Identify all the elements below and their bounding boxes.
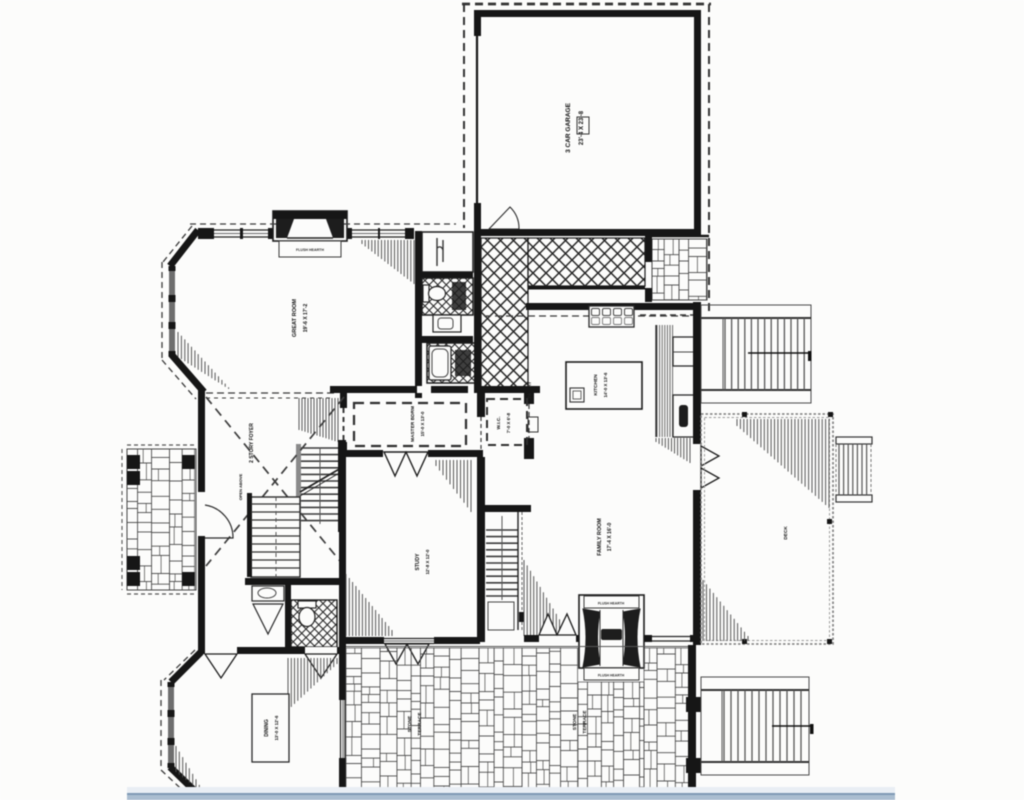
svg-text:STONE: STONE [407, 715, 413, 732]
svg-text:23'-4 X 23'-8: 23'-4 X 23'-8 [579, 110, 585, 145]
svg-text:17'-4 X 16'-0: 17'-4 X 16'-0 [607, 523, 613, 552]
svg-text:W.I.C.: W.I.C. [496, 416, 502, 429]
svg-text:MASTER BDRM: MASTER BDRM [410, 406, 416, 442]
svg-text:15'-0 X 13'-0: 15'-0 X 13'-0 [420, 411, 425, 437]
svg-text:7'-0 X 6'-8: 7'-0 X 6'-8 [506, 412, 511, 433]
svg-text:KITCHEN: KITCHEN [593, 374, 599, 396]
svg-text:GREAT ROOM: GREAT ROOM [292, 299, 298, 337]
svg-text:19'-6 X 17'-2: 19'-6 X 17'-2 [303, 304, 309, 333]
svg-text:12'-8 X 12'-0: 12'-8 X 12'-0 [425, 549, 430, 575]
svg-text:FLUSH HEARTH: FLUSH HEARTH [598, 674, 625, 678]
svg-text:3 CAR GARAGE: 3 CAR GARAGE [565, 102, 572, 153]
svg-text:FAMILY ROOM: FAMILY ROOM [597, 518, 603, 556]
svg-text:STONE: STONE [572, 713, 578, 730]
svg-text:OPEN ABOVE: OPEN ABOVE [238, 473, 243, 500]
svg-text:FLUSH HEARTH: FLUSH HEARTH [296, 248, 324, 252]
svg-text:FLUSH HEARTH: FLUSH HEARTH [598, 602, 625, 606]
svg-text:DECK: DECK [783, 526, 789, 540]
svg-text:14'-0 X 13'-6: 14'-0 X 13'-6 [603, 372, 608, 398]
svg-text:DINING: DINING [264, 719, 270, 737]
svg-text:TERRACE: TERRACE [582, 710, 588, 734]
svg-text:TERRACE: TERRACE [417, 712, 423, 736]
svg-text:2 STORY FOYER: 2 STORY FOYER [249, 423, 255, 463]
svg-text:STUDY: STUDY [415, 553, 421, 571]
svg-text:13'-0 X 12'-6: 13'-0 X 12'-6 [274, 715, 279, 741]
